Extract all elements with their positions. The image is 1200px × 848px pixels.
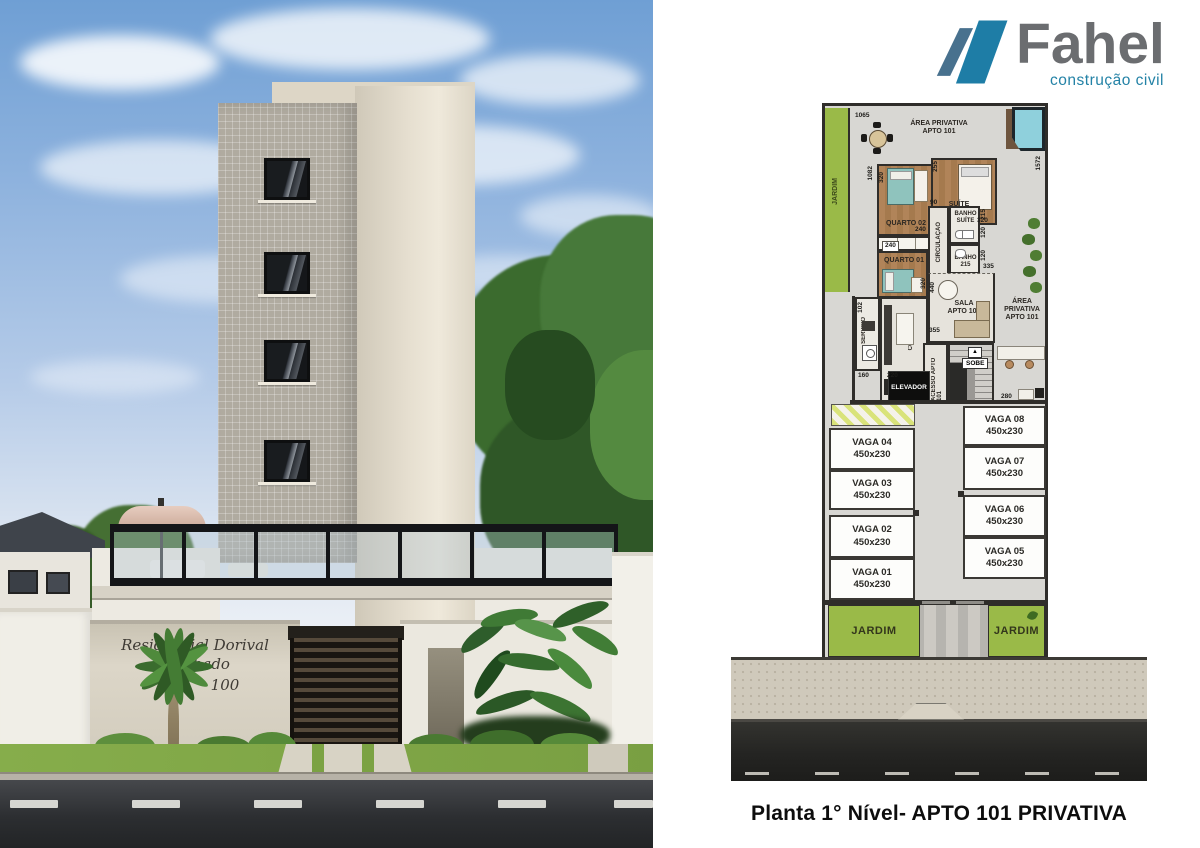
dim-top: 1065: [855, 113, 869, 120]
ramp-hatch: [831, 404, 915, 426]
garage-gate: [290, 638, 402, 750]
pool-water: [1012, 107, 1045, 151]
wall-post: [913, 510, 919, 516]
washer-door: [866, 349, 875, 358]
vaga-size: 450x230: [854, 537, 891, 548]
stool: [1025, 360, 1034, 369]
railing-post: [326, 532, 330, 580]
parking-space: VAGA 04450x230: [829, 428, 915, 470]
glass-railing: [110, 524, 618, 586]
planter: [1023, 266, 1036, 277]
side-path: [588, 744, 628, 774]
stairs-rail: [967, 363, 975, 403]
planter: [1030, 250, 1042, 261]
driveway-track: [968, 605, 980, 657]
front-gate: [922, 601, 950, 604]
pool: [1006, 107, 1045, 151]
dim-bs-depth: 215: [981, 209, 988, 220]
dim-cozinha-width: 220: [887, 373, 898, 380]
brand-name: Fahel: [1016, 16, 1165, 73]
room-banho-suite: BANHO SUÍTE: [949, 206, 980, 244]
closet-row: 240: [877, 236, 933, 251]
washer: [862, 345, 877, 361]
round-table: [869, 130, 887, 148]
neighbor-house-window: [46, 572, 70, 594]
facade-window: [264, 440, 310, 482]
sofa: [954, 320, 990, 338]
outdoor-counter: [997, 346, 1045, 360]
stairs-label-sobe: SOBE: [962, 358, 988, 369]
chair: [873, 148, 881, 154]
facade-window: [264, 340, 310, 382]
garden-front-right: JARDIM: [988, 605, 1045, 657]
road-dash: [614, 800, 653, 808]
dim-q2-width: 240: [915, 227, 926, 234]
vaga-name: VAGA 04: [852, 437, 892, 448]
window-sill: [258, 382, 316, 385]
wardrobe: [914, 170, 928, 202]
railing-post: [398, 532, 402, 580]
railing-post: [542, 532, 546, 580]
equipment-box: [1035, 388, 1044, 398]
cloud: [460, 55, 640, 105]
vaga-name: VAGA 05: [985, 546, 1025, 557]
dim-circ: 90: [930, 200, 937, 207]
road-dash: [376, 800, 424, 808]
room-label-quarto01: QUARTO 01: [881, 257, 927, 265]
floor-plan: JARDIM 1065 ÁREA PRIVATIVA APTO 101 1572…: [822, 103, 1048, 660]
parking-space: VAGA 08450x230: [963, 406, 1046, 446]
kitchen-island: [896, 313, 914, 345]
vaga-name: VAGA 08: [985, 414, 1025, 425]
sink: [962, 230, 974, 239]
neighbor-house-window: [8, 570, 38, 594]
palm-crown: [124, 632, 224, 702]
pillow: [885, 272, 894, 291]
garden-label: JARDIM: [851, 625, 896, 637]
plant-symbol: [1027, 610, 1039, 622]
parking-space: VAGA 03450x230: [829, 470, 915, 510]
railing-bottom-rail: [110, 578, 618, 586]
front-gate: [956, 601, 984, 604]
dim-q2-side: 320: [879, 172, 886, 183]
vaga-name: VAGA 02: [852, 524, 892, 535]
railing-post: [110, 532, 114, 580]
brand-tagline: construção civil: [1002, 72, 1164, 90]
hall-label-acesso: ACESSO APTO 101: [931, 351, 943, 401]
vaga-size: 450x230: [986, 468, 1023, 479]
facade-window: [264, 252, 310, 294]
vaga-size: 450x230: [986, 426, 1023, 437]
stool: [1005, 360, 1014, 369]
stairs-landing: [950, 363, 967, 403]
room-quarto01: QUARTO 01: [877, 251, 928, 298]
plant-leaf: [570, 620, 623, 659]
street-dash: [885, 772, 909, 775]
dim-suite-top: 255: [933, 161, 940, 172]
road-dash: [10, 800, 58, 808]
parking-space: VAGA 06450x230: [963, 495, 1046, 537]
chair: [873, 122, 881, 128]
sofa-chaise: [976, 301, 990, 321]
street-dash: [1025, 772, 1049, 775]
railing-post: [182, 532, 186, 580]
driveway-track: [946, 605, 958, 657]
vaga-name: VAGA 03: [852, 478, 892, 489]
vaga-name: VAGA 07: [985, 456, 1025, 467]
road-dash: [498, 800, 546, 808]
pillow: [961, 167, 989, 177]
garden-strip-label: JARDIM: [832, 178, 839, 205]
area-privativa-label-top: ÁREA PRIVATIVA APTO 101: [907, 120, 971, 136]
road: [0, 780, 653, 848]
dim-cozinha-top: 355: [929, 328, 940, 335]
parking-space: VAGA 05450x230: [963, 537, 1046, 579]
vaga-name: VAGA 06: [985, 504, 1025, 515]
elevator-label: ELEVADOR: [891, 384, 927, 391]
dim-sala-side: 440: [930, 282, 937, 293]
dim-left: 1082: [868, 166, 875, 180]
street-dash: [815, 772, 839, 775]
parking-space: VAGA 01450x230: [829, 558, 915, 600]
garden-front-left: JARDIM: [828, 605, 920, 657]
railing-post: [254, 532, 258, 580]
room-label-banho-suite: BANHO SUÍTE: [952, 211, 979, 225]
marketing-sheet: Residencial Dorival Machado 100: [0, 0, 1200, 848]
curb: [0, 772, 653, 780]
dim-closet: 240: [882, 241, 899, 252]
stairs-up-arrow-icon: ▲: [968, 347, 982, 358]
plan-title: Planta 1° Nível- APTO 101 PRIVATIVA: [731, 802, 1147, 826]
parking-space: VAGA 02450x230: [829, 515, 915, 558]
vaga-size: 450x230: [854, 490, 891, 501]
dim-sala-right: 335: [983, 264, 994, 271]
cloud: [20, 35, 220, 90]
building-rendering: Residencial Dorival Machado 100: [0, 0, 653, 848]
laundry-tank: [862, 321, 875, 331]
cloud: [30, 360, 200, 394]
driveway-track: [924, 605, 936, 657]
dim-servico-width: 160: [858, 373, 869, 380]
railing-top-rail: [110, 524, 618, 532]
railing-post: [470, 532, 474, 580]
planter: [1028, 218, 1040, 229]
dim-servico-side: 102: [858, 302, 865, 313]
street-dash: [745, 772, 769, 775]
vaga-size: 450x230: [854, 579, 891, 590]
bed: [887, 168, 914, 205]
road-dash: [132, 800, 180, 808]
facade-window: [264, 158, 310, 200]
garden-label: JARDIM: [994, 625, 1039, 637]
dim-q1-side: 320: [921, 278, 928, 289]
planter: [1030, 282, 1042, 293]
toilet: [955, 249, 966, 258]
doormat: [1018, 389, 1034, 400]
garden-strip-left: JARDIM: [825, 108, 850, 292]
road-dash: [254, 800, 302, 808]
fence-left: [0, 612, 92, 762]
vaga-size: 450x230: [986, 558, 1023, 569]
street-dash: [1095, 772, 1119, 775]
wall: [852, 296, 855, 404]
bed: [882, 269, 914, 293]
window-sill: [258, 200, 316, 203]
pillow: [890, 171, 912, 180]
dining-table: [938, 280, 958, 300]
chair: [887, 134, 893, 142]
vaga-name: VAGA 01: [852, 567, 892, 578]
street-dash: [955, 772, 979, 775]
terrace-table-set: [861, 122, 893, 154]
driveway: [920, 605, 988, 657]
vaga-size: 450x230: [854, 449, 891, 460]
wall-post: [958, 491, 964, 497]
planter: [1022, 234, 1035, 245]
driveway-apron: [278, 744, 412, 774]
tree: [505, 330, 595, 440]
kitchen-counter: [884, 305, 892, 365]
apron-grass-strip: [312, 744, 324, 774]
chair: [861, 134, 867, 142]
dim-bs-width: 120: [981, 227, 988, 238]
closet-divider: [915, 238, 916, 249]
vaga-size: 450x230: [986, 516, 1023, 527]
window-sill: [258, 482, 316, 485]
cloud: [210, 8, 490, 70]
dim-right: 1572: [1036, 156, 1043, 170]
stairs: ▲ SOBE: [948, 343, 994, 403]
street: [731, 722, 1147, 781]
window-sill: [258, 294, 316, 297]
apron-grass-strip: [362, 744, 374, 774]
dim-banho: 215: [952, 262, 979, 269]
room-label-circulacao: CIRCULAÇÃO: [936, 222, 942, 262]
parking-space: VAGA 07450x230: [963, 446, 1046, 490]
area-privativa-label-right: ÁREA PRIVATIVA APTO 101: [997, 298, 1047, 322]
room-banho: BANHO 215: [949, 244, 980, 274]
dim-banho-width: 120: [981, 250, 988, 261]
